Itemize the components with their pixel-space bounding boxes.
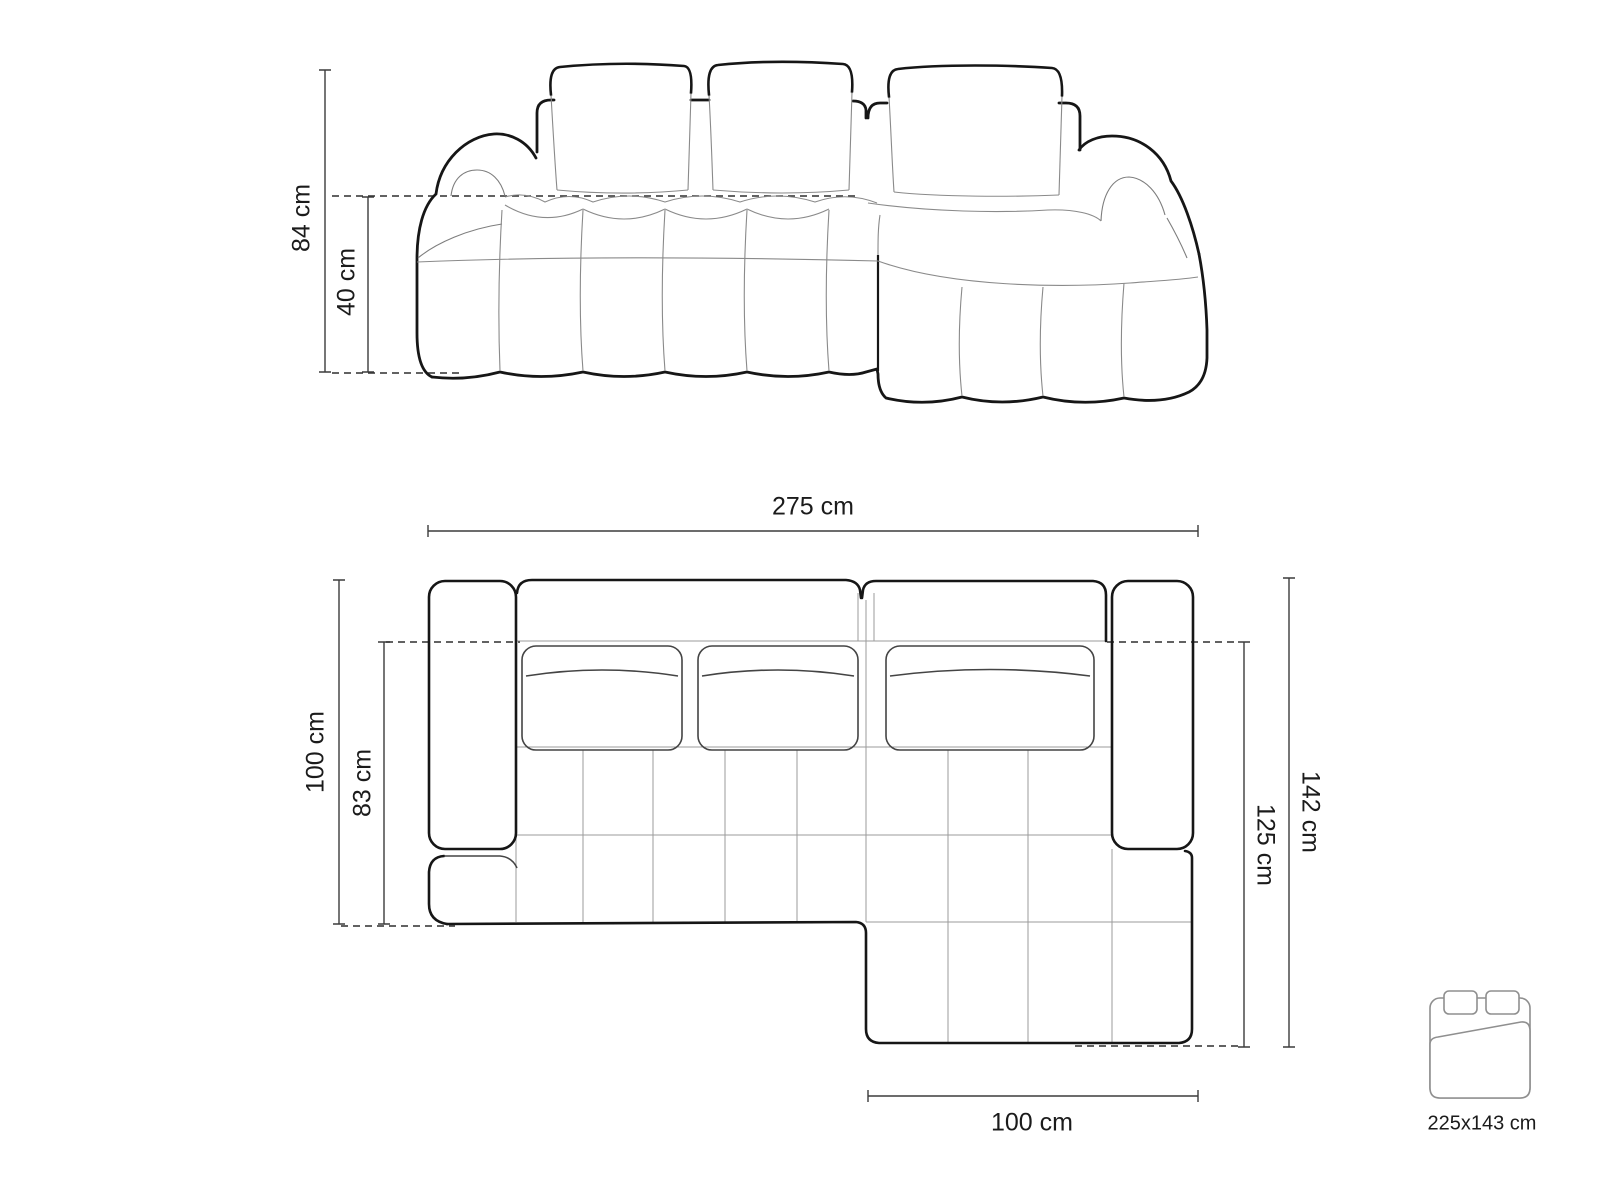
dim-142cm-line [1283,578,1295,1047]
chaise-top-sweep [868,203,1101,221]
dim-142cm-label: 142 cm [1296,771,1324,853]
front-armrest-right [1079,136,1199,254]
pillow-top-edges [550,62,1062,97]
dim-40cm-line [362,197,374,372]
seat-tuft-smiles [505,205,829,219]
plan-cushion-3 [886,646,1094,750]
dim-100cm-chaise-line [868,1090,1198,1102]
top-view: 275 cm 100 cm 83 cm 142 cm 125 cm 100 cm [302,493,1325,1137]
plan-back-cushions [522,646,1094,750]
dim-83cm-label: 83 cm [349,749,377,817]
plan-front-left-corner [429,856,447,924]
plan-outline [429,580,1193,1043]
front-seat-silhouette [432,254,1207,402]
back-pillow-1 [550,64,691,95]
plan-armrest-right [1112,581,1193,849]
sofa-dimension-diagram: 84 cm 40 cm [0,0,1600,1200]
back-pillow-2 [708,62,852,95]
dim-125cm-line [1238,642,1250,1047]
plan-cushion-2 [698,646,858,750]
dim-275cm-line [428,525,1198,537]
dim-84cm-line [319,70,331,372]
bed-pillow-left [1444,991,1477,1014]
dim-125cm-label: 125 cm [1251,804,1279,886]
pillow-soft-edges [551,92,1062,196]
plan-cushion-1 [522,646,682,750]
sofa-dimension-diagram-page: 84 cm 40 cm [0,0,1600,1200]
dim-40cm-label: 40 cm [333,248,361,316]
front-seat-seams [417,195,1198,397]
dim-100cm-chaise-label: 100 cm [991,1109,1073,1137]
front-backrest-notch [853,101,887,118]
front-armrests [417,134,1199,377]
chaise-front-seam [878,261,1198,285]
front-back-pillows [550,62,1062,196]
plan-grid [516,593,1192,1043]
plan-seat-front-and-chaise [447,851,1192,1043]
front-view: 84 cm 40 cm [288,62,1207,402]
dim-275cm-label: 275 cm [772,493,854,521]
plan-backrest-right [862,581,1106,641]
bed-size-label: 225x143 cm [1428,1112,1537,1134]
armrest-inner-seams [418,170,1187,258]
seat-horizontal-seam [417,258,878,262]
back-pillow-3 [888,66,1062,98]
plan-backrest-left [517,580,861,598]
bed-pillow-right [1486,991,1519,1014]
dim-100cm-side-label: 100 cm [302,711,330,793]
plan-armrest-left [429,581,516,849]
front-backrest-right-edge [1059,103,1080,150]
dim-100cm-side-line [333,580,345,924]
front-backrest [537,100,1080,152]
dim-84cm-label: 84 cm [288,184,316,252]
bed-icon: 225x143 cm [1428,991,1537,1134]
plan-front-left-corner-top [444,856,517,868]
plan-dashed-leaders [341,642,1238,1046]
dim-83cm-line [378,642,390,924]
